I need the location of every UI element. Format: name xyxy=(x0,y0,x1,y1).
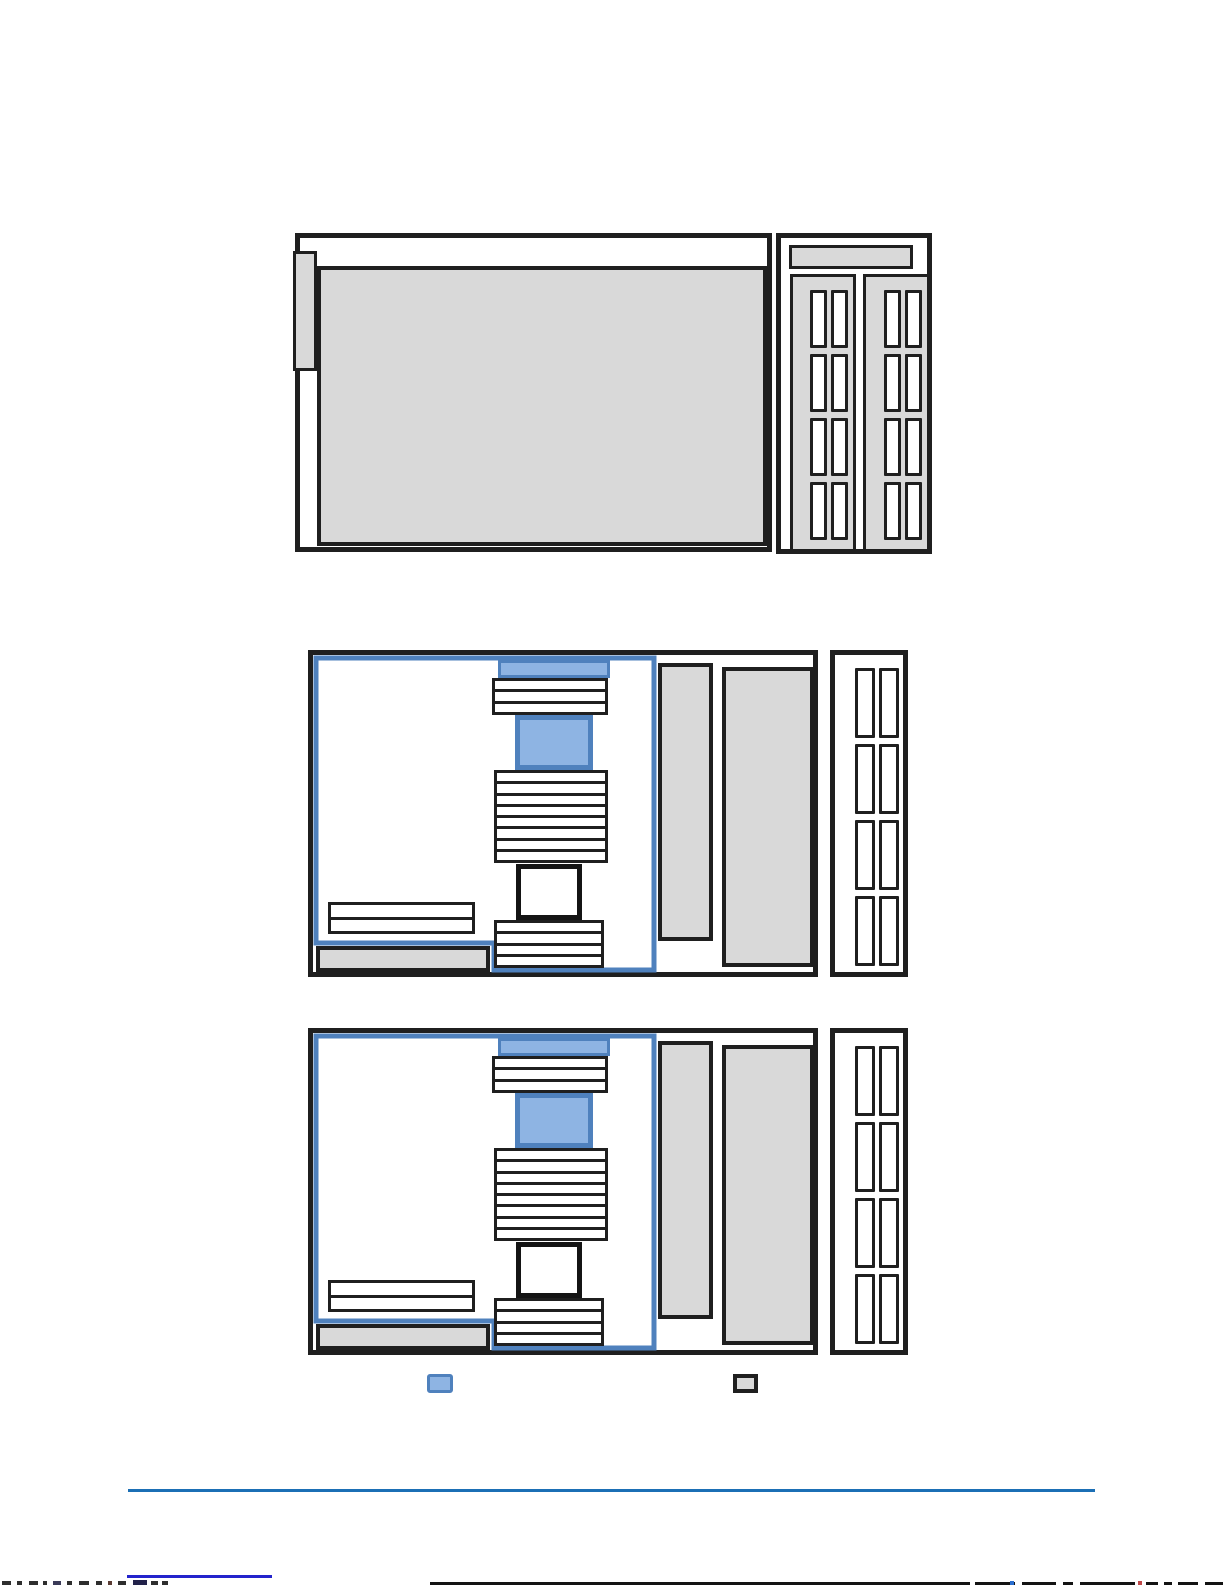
slot xyxy=(497,1151,605,1162)
drive-slot xyxy=(905,290,922,348)
slot xyxy=(497,957,601,965)
rear-slot-grid xyxy=(855,668,899,966)
document-page xyxy=(0,0,1225,1585)
slot xyxy=(497,1301,601,1312)
slot xyxy=(497,1174,605,1185)
clipped-glyph-fragment xyxy=(53,1581,61,1585)
drive-slot xyxy=(905,418,922,476)
drive-cage-section xyxy=(776,233,932,554)
highlighted-component xyxy=(515,715,593,770)
drive-slot-grid xyxy=(810,290,848,540)
drive-panel-right xyxy=(863,274,930,552)
rear-slot xyxy=(855,1198,875,1268)
clipped-glyph-fragment xyxy=(29,1581,38,1585)
drive-slot xyxy=(905,354,922,412)
clipped-glyph-fragment xyxy=(2,1581,11,1585)
clipped-glyph-fragment xyxy=(1010,1581,1014,1585)
slot xyxy=(497,923,601,934)
legend-swatch-highlight xyxy=(427,1374,453,1393)
drive-slot xyxy=(831,418,848,476)
drive-slot xyxy=(831,290,848,348)
clipped-footer-text-line xyxy=(0,1570,1225,1585)
clipped-glyph-fragment xyxy=(43,1581,47,1585)
rear-slot-grid xyxy=(855,1046,899,1344)
system-board-area xyxy=(317,266,767,546)
rear-slot xyxy=(879,820,899,890)
rear-bay-section xyxy=(830,650,908,977)
cage-top-bar xyxy=(789,245,913,269)
highlighted-slot-bar xyxy=(498,660,610,678)
slot xyxy=(497,796,605,807)
rear-slot xyxy=(879,1198,899,1268)
slot xyxy=(497,934,601,945)
slot xyxy=(497,773,605,784)
slot xyxy=(497,807,605,818)
clipped-glyph-fragment xyxy=(79,1581,89,1585)
riser-column-wide xyxy=(722,1045,814,1345)
chassis-left-tab xyxy=(293,251,317,371)
slot xyxy=(331,1298,472,1310)
slot xyxy=(331,905,472,920)
slot xyxy=(497,1312,601,1323)
slot-stack-middle xyxy=(494,770,608,863)
rear-slot xyxy=(879,668,899,738)
drive-slot xyxy=(884,354,901,412)
clipped-glyph-fragment xyxy=(96,1581,102,1585)
slot xyxy=(331,1283,472,1298)
drive-slot-grid xyxy=(884,290,922,540)
slot xyxy=(497,1196,605,1207)
rear-slot xyxy=(855,1274,875,1344)
rear-slot xyxy=(855,896,875,966)
slot xyxy=(497,784,605,795)
slot-stack-bottom xyxy=(494,1298,604,1346)
slot xyxy=(331,920,472,932)
slot xyxy=(497,1219,605,1230)
slot-stack-side xyxy=(328,1280,475,1312)
footer-divider-rule xyxy=(128,1489,1095,1492)
clipped-link-underline xyxy=(127,1575,272,1578)
slot xyxy=(497,841,605,852)
drive-panel-left xyxy=(790,274,856,552)
slot xyxy=(497,1207,605,1218)
drive-slot xyxy=(810,290,827,348)
rear-slot xyxy=(879,896,899,966)
slot xyxy=(497,1162,605,1173)
slot xyxy=(495,1070,605,1081)
rear-slot xyxy=(855,820,875,890)
drive-slot xyxy=(884,290,901,348)
slot xyxy=(497,818,605,829)
component-socket xyxy=(516,1242,582,1298)
drive-slot xyxy=(810,418,827,476)
drive-slot xyxy=(884,418,901,476)
slot xyxy=(495,704,605,712)
slot-stack-middle xyxy=(494,1148,608,1241)
rear-slot xyxy=(855,1122,875,1192)
clipped-glyph-fragment xyxy=(17,1581,22,1585)
slot-stack-side xyxy=(328,902,475,934)
slot xyxy=(495,692,605,703)
riser-column-narrow xyxy=(658,1041,713,1319)
component-socket xyxy=(516,864,582,920)
drive-slot xyxy=(831,354,848,412)
slot xyxy=(495,1082,605,1090)
legend-swatch-component xyxy=(733,1374,758,1393)
rear-bay-section xyxy=(830,1028,908,1355)
riser-column-wide xyxy=(722,667,814,967)
rear-slot xyxy=(879,744,899,814)
slot xyxy=(497,852,605,860)
drive-slot xyxy=(810,354,827,412)
drive-slot xyxy=(884,482,901,540)
highlighted-slot-bar xyxy=(498,1038,610,1056)
figure-system-board-upper xyxy=(308,650,908,977)
drive-slot xyxy=(905,482,922,540)
rear-slot xyxy=(879,1046,899,1116)
slot xyxy=(495,1059,605,1070)
highlighted-component xyxy=(515,1093,593,1148)
clipped-glyph-fragment xyxy=(151,1581,158,1585)
front-bar xyxy=(316,1324,490,1350)
rear-slot xyxy=(855,668,875,738)
slot xyxy=(497,829,605,840)
figure-chassis-overview xyxy=(293,233,932,555)
slot xyxy=(495,681,605,692)
clipped-glyph-fragment xyxy=(162,1581,168,1585)
clipped-glyph-fragment xyxy=(118,1581,126,1585)
rear-slot xyxy=(879,1274,899,1344)
clipped-glyph-fragment xyxy=(108,1581,112,1585)
slot xyxy=(497,1335,601,1343)
slot-stack-bottom xyxy=(494,920,604,968)
rear-slot xyxy=(879,1122,899,1192)
clipped-glyph-fragment xyxy=(1138,1581,1142,1585)
slot-stack-top xyxy=(492,1056,608,1093)
drive-slot xyxy=(831,482,848,540)
front-bar xyxy=(316,946,490,972)
slot xyxy=(497,1185,605,1196)
rear-slot xyxy=(855,744,875,814)
legend xyxy=(0,1374,1225,1394)
rear-slot xyxy=(855,1046,875,1116)
slot-stack-top xyxy=(492,678,608,715)
riser-column-narrow xyxy=(658,663,713,941)
clipped-glyph-fragment xyxy=(67,1581,72,1585)
clipped-glyph-fragment xyxy=(133,1580,147,1585)
slot xyxy=(497,946,601,957)
slot xyxy=(497,1324,601,1335)
figure-system-board-lower xyxy=(308,1028,908,1355)
slot xyxy=(497,1230,605,1238)
drive-slot xyxy=(810,482,827,540)
